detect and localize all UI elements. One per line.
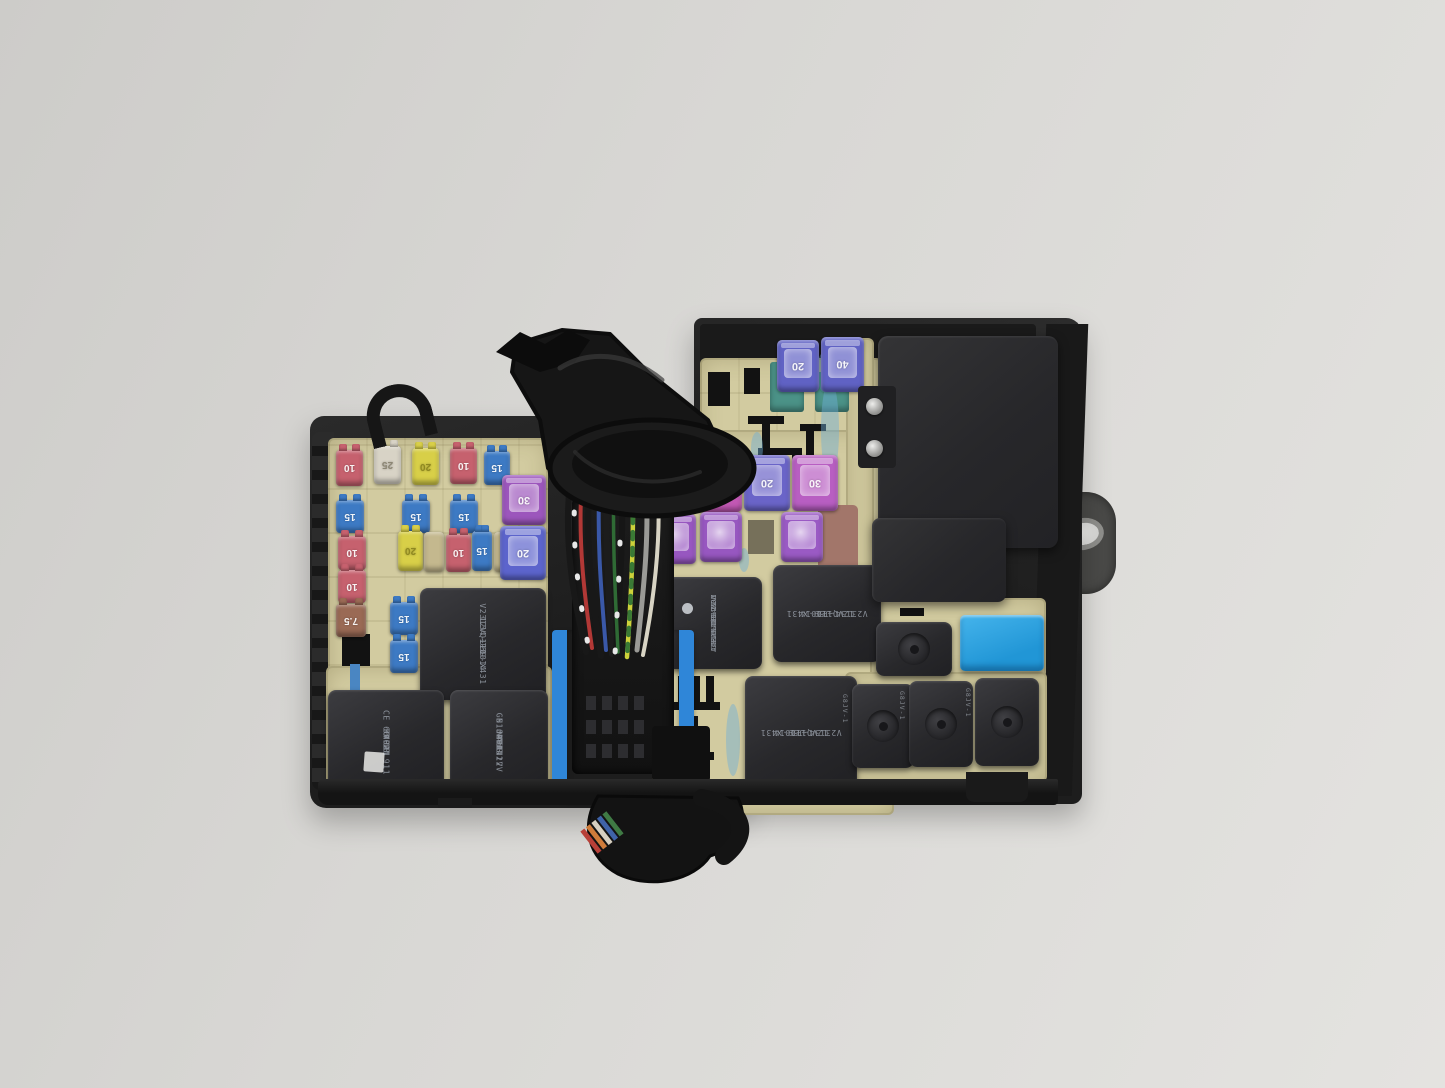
exiting-harness	[580, 796, 742, 882]
fusebox-photo: 102520101515151510201015107.515153020204…	[0, 0, 1445, 1088]
rubber-boot	[496, 330, 754, 516]
rubber-boot-and-harness	[0, 0, 1445, 1088]
